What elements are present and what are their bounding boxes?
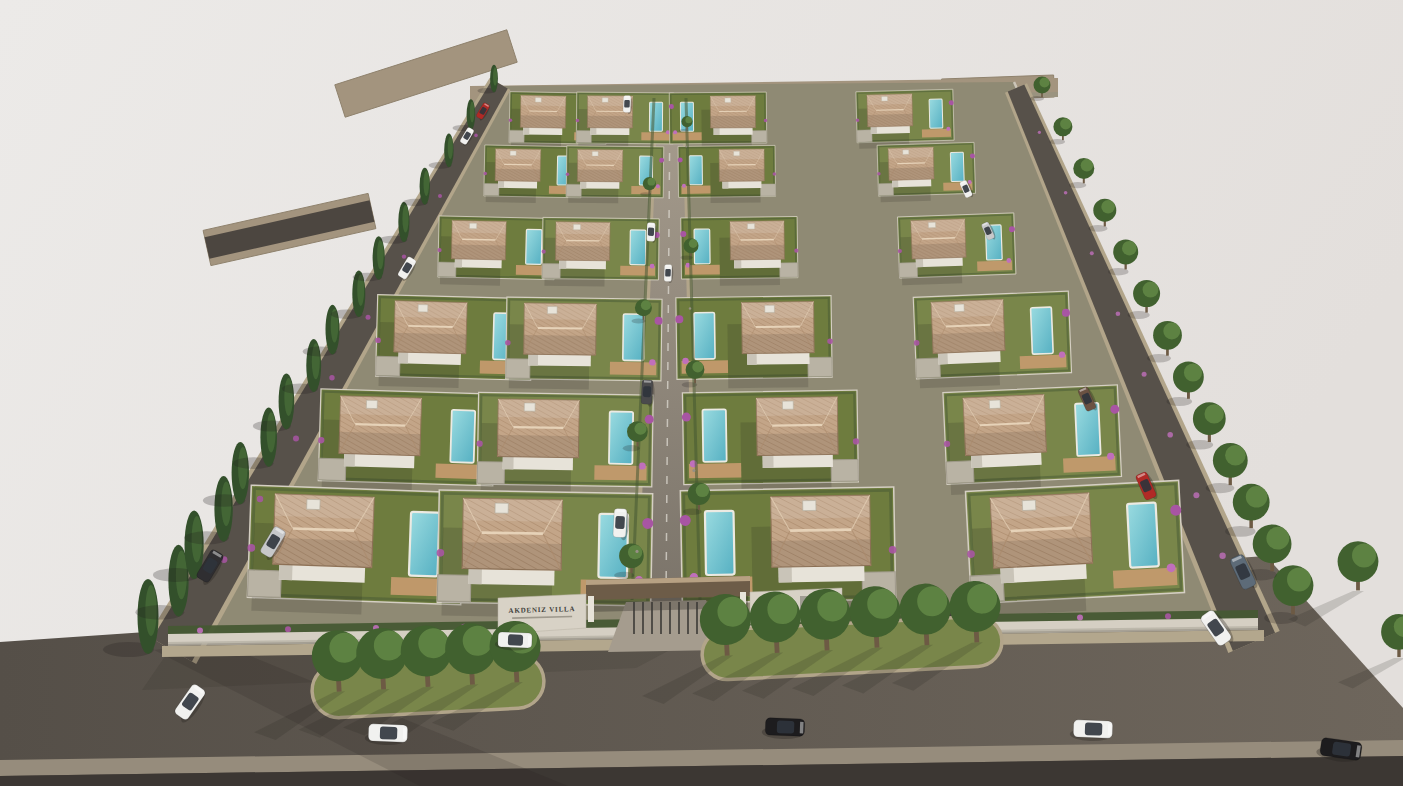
villa bbox=[437, 216, 556, 287]
villa-roof bbox=[990, 493, 1093, 568]
villa bbox=[876, 142, 976, 202]
villa bbox=[681, 390, 859, 495]
chimney bbox=[803, 501, 816, 511]
chimney bbox=[547, 306, 557, 313]
villa bbox=[245, 485, 465, 618]
garage bbox=[376, 356, 400, 376]
swimming-pool bbox=[450, 410, 475, 463]
garage bbox=[318, 458, 346, 480]
car bbox=[762, 718, 805, 740]
villa-roof bbox=[497, 399, 579, 458]
garage bbox=[437, 575, 470, 602]
villa-roof bbox=[710, 96, 755, 128]
garage bbox=[946, 461, 974, 484]
villa-roof bbox=[273, 494, 374, 568]
villa-roof bbox=[719, 149, 764, 181]
swimming-pool bbox=[694, 312, 715, 359]
chimney bbox=[524, 403, 535, 411]
car bbox=[623, 95, 633, 114]
swimming-pool bbox=[630, 230, 646, 265]
pool-deck bbox=[620, 266, 655, 276]
street-light bbox=[685, 146, 687, 148]
pool-deck bbox=[1063, 456, 1116, 473]
chimney bbox=[881, 96, 887, 101]
chimney bbox=[573, 224, 580, 229]
chimney bbox=[782, 401, 793, 409]
chimney bbox=[592, 152, 598, 157]
swimming-pool bbox=[1031, 307, 1054, 354]
villa bbox=[855, 89, 955, 149]
chimney bbox=[535, 98, 541, 103]
render-viewport: AKDENIZ VILLA bbox=[0, 0, 1403, 786]
villa bbox=[897, 213, 1017, 285]
villa-roof bbox=[931, 299, 1005, 353]
garage bbox=[542, 264, 560, 279]
car bbox=[1070, 720, 1113, 742]
swimming-pool bbox=[689, 156, 702, 185]
villa-roof bbox=[462, 498, 562, 570]
villa-roof bbox=[963, 394, 1047, 455]
swimming-pool bbox=[929, 99, 943, 128]
swimming-pool bbox=[705, 511, 735, 575]
garage bbox=[916, 358, 941, 378]
pool-deck bbox=[977, 260, 1012, 271]
swimming-pool bbox=[1127, 503, 1159, 568]
pool-deck bbox=[1020, 354, 1067, 369]
villa-roof bbox=[451, 220, 506, 260]
car bbox=[495, 632, 533, 651]
chimney bbox=[495, 503, 508, 513]
car bbox=[365, 724, 408, 746]
villa-roof bbox=[520, 95, 566, 128]
garage bbox=[247, 570, 281, 598]
garage bbox=[857, 130, 872, 142]
chimney bbox=[307, 499, 321, 509]
swimming-pool bbox=[409, 512, 440, 577]
garage bbox=[506, 359, 530, 379]
chimney bbox=[928, 222, 935, 228]
chimney bbox=[510, 151, 516, 156]
chimney bbox=[747, 224, 754, 229]
villa-roof bbox=[577, 149, 622, 181]
bougainvillea bbox=[669, 104, 674, 109]
pool-deck bbox=[922, 129, 951, 138]
garage bbox=[477, 462, 504, 484]
scene-svg: AKDENIZ VILLA bbox=[0, 0, 1403, 786]
villa-roof bbox=[911, 219, 966, 259]
swimming-pool bbox=[950, 152, 964, 181]
garage bbox=[831, 459, 858, 481]
villa-roof bbox=[339, 396, 422, 456]
villa bbox=[678, 145, 777, 203]
garage bbox=[438, 262, 456, 277]
villa bbox=[912, 291, 1073, 388]
garage bbox=[509, 130, 524, 142]
villa bbox=[680, 216, 799, 286]
garage bbox=[752, 131, 767, 143]
garage bbox=[566, 184, 581, 196]
villa-roof bbox=[742, 301, 815, 353]
garage bbox=[808, 357, 832, 377]
villa-roof bbox=[756, 397, 838, 456]
chimney bbox=[366, 400, 377, 408]
garage bbox=[576, 131, 591, 143]
villa-roof bbox=[394, 301, 467, 354]
garage bbox=[878, 183, 893, 195]
chimney bbox=[469, 223, 476, 229]
car bbox=[664, 264, 674, 283]
pool-deck bbox=[610, 362, 657, 375]
street-light bbox=[689, 307, 691, 309]
car bbox=[646, 223, 657, 244]
chimney bbox=[725, 98, 731, 103]
swimming-pool bbox=[526, 229, 542, 264]
pool-deck bbox=[681, 186, 710, 194]
villa-roof bbox=[888, 147, 934, 180]
chimney bbox=[602, 98, 608, 103]
villa-roof bbox=[524, 303, 597, 355]
chimney bbox=[989, 400, 1000, 409]
swimming-pool bbox=[702, 409, 726, 462]
garage bbox=[760, 184, 775, 196]
chimney bbox=[1022, 500, 1036, 511]
villa-roof bbox=[556, 222, 610, 261]
villa bbox=[317, 389, 497, 497]
villa-roof bbox=[771, 495, 871, 567]
villa bbox=[476, 392, 654, 497]
villa-roof bbox=[495, 149, 541, 182]
villa bbox=[541, 217, 660, 287]
chimney bbox=[765, 305, 775, 312]
chimney bbox=[734, 151, 740, 156]
chimney bbox=[903, 150, 909, 155]
chimney bbox=[954, 304, 964, 312]
garage bbox=[780, 263, 798, 278]
chimney bbox=[418, 305, 428, 312]
villa-roof bbox=[867, 94, 913, 127]
villa-roof bbox=[730, 221, 784, 260]
street-light bbox=[635, 550, 638, 553]
street-light bbox=[692, 469, 695, 472]
pool-deck bbox=[641, 132, 670, 140]
garage bbox=[899, 262, 917, 277]
garage bbox=[484, 183, 499, 195]
